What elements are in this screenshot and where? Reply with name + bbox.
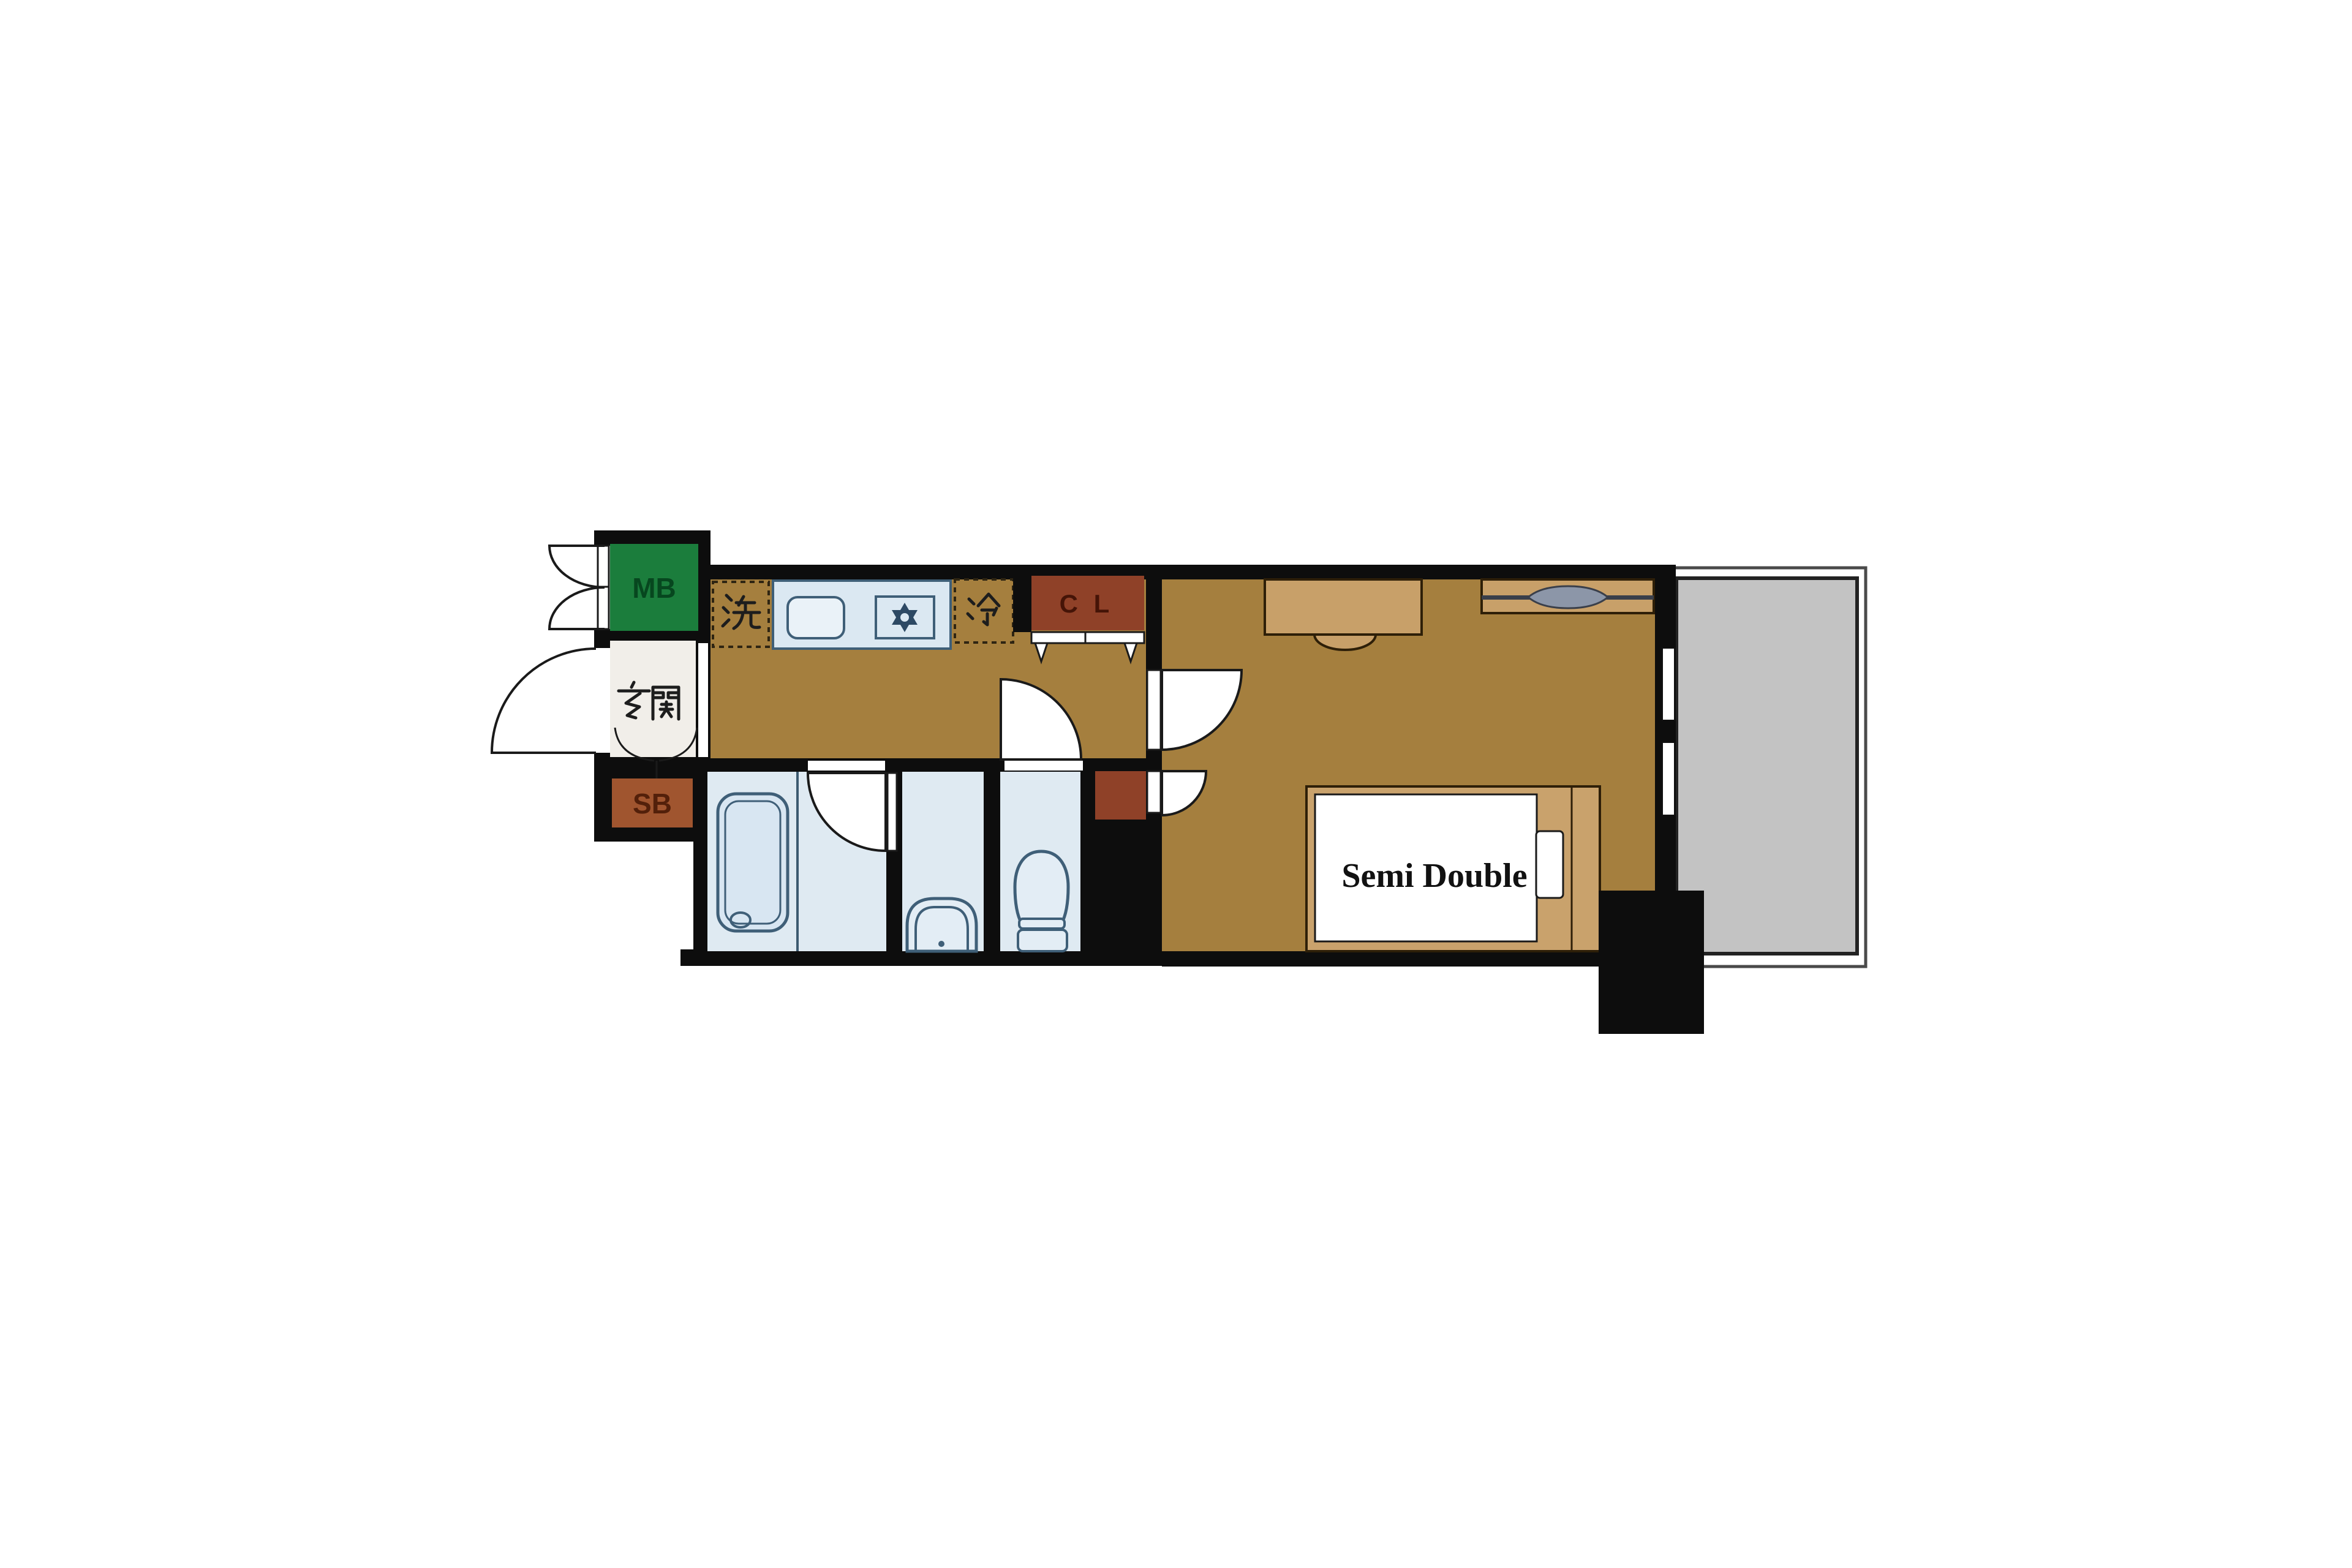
svg-text:Semi Double: Semi Double — [1341, 857, 1527, 895]
svg-text:MB: MB — [632, 572, 676, 604]
svg-text:SB: SB — [633, 788, 672, 820]
svg-text:C L: C L — [1060, 589, 1114, 618]
